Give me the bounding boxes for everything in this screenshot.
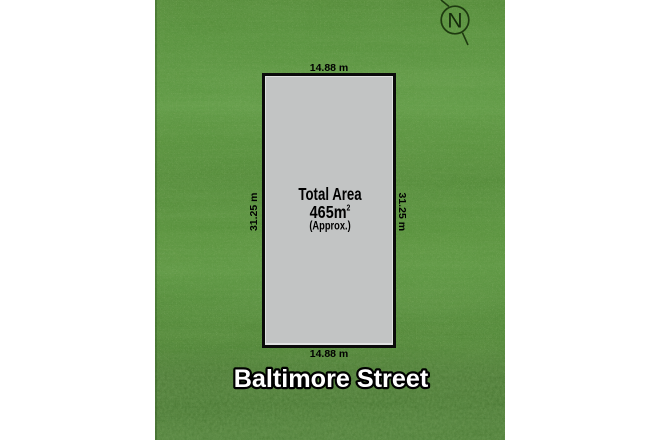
svg-text:N: N [447, 10, 462, 33]
svg-text:(Approx.): (Approx.) [309, 221, 350, 233]
svg-text:465m2: 465m2 [310, 203, 351, 223]
svg-text:Baltimore Street: Baltimore Street [234, 365, 429, 393]
